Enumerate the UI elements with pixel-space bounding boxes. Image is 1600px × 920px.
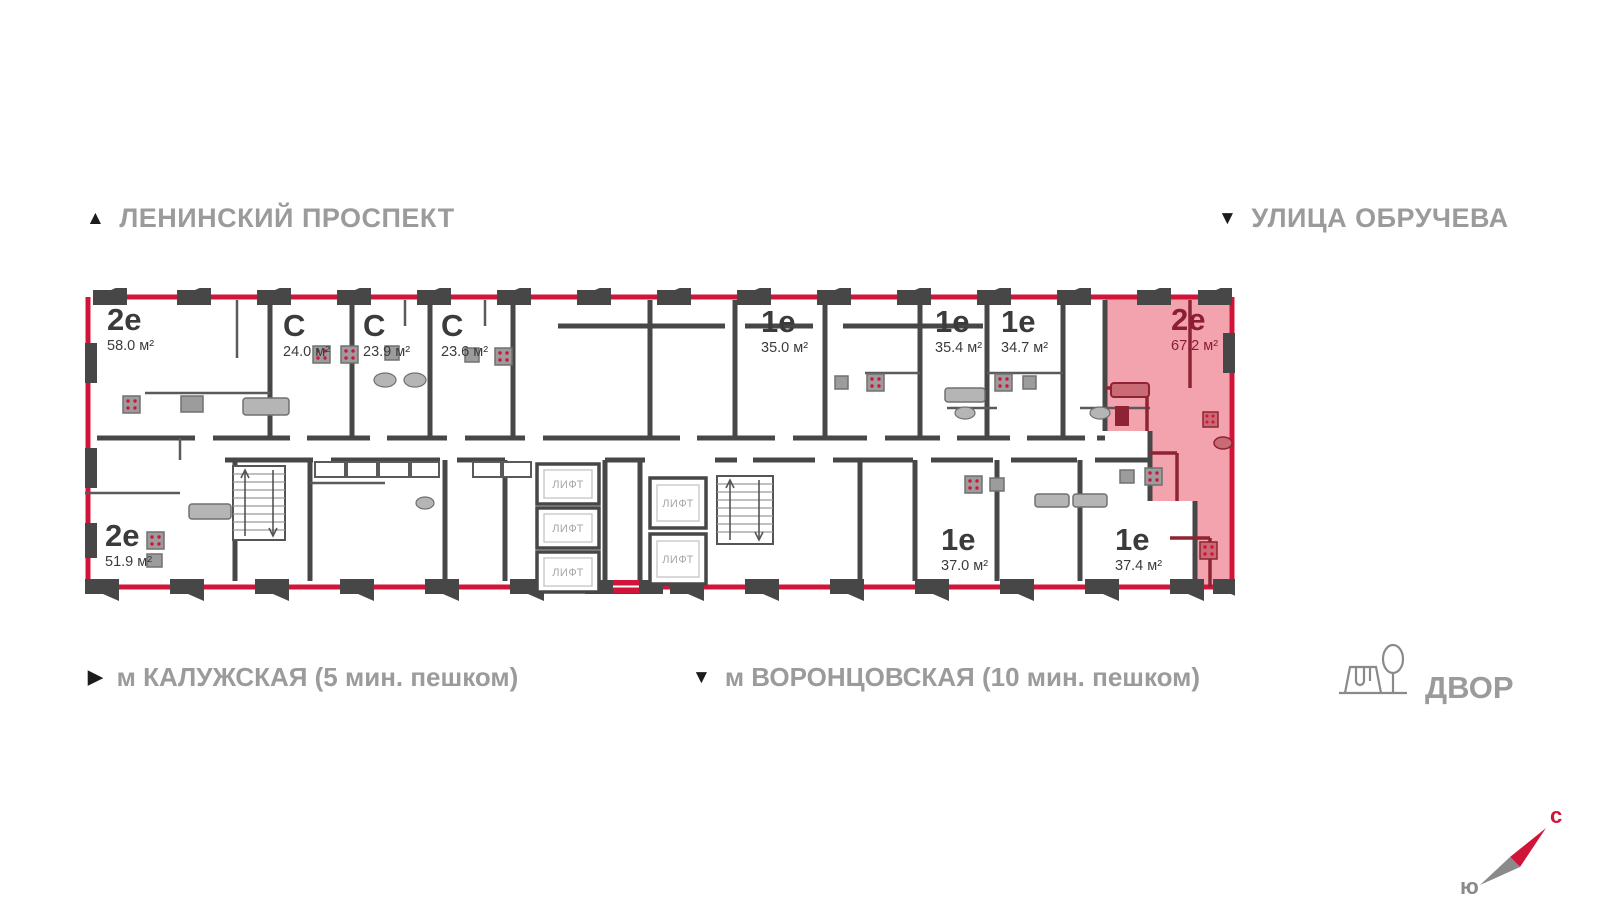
svg-text:58.0 м²: 58.0 м² (107, 338, 154, 354)
svg-text:2е: 2е (107, 302, 141, 337)
thin-partitions (85, 300, 1150, 493)
svg-text:23.6 м²: 23.6 м² (441, 344, 488, 360)
elevator-bank-right: ЛИФТ ЛИФТ (650, 478, 706, 584)
svg-text:1е: 1е (941, 522, 975, 557)
metro-label-vorontsovskaya: ▼ м ВОРОНЦОВСКАЯ (10 мин. пешком) (692, 662, 1200, 693)
svg-text:С: С (441, 308, 463, 343)
elevator-label: ЛИФТ (662, 498, 694, 510)
apartment-label-c-24[interactable]: С 24.0 м² (283, 308, 330, 360)
svg-text:23.9 м²: 23.9 м² (363, 344, 410, 360)
svg-text:51.9 м²: 51.9 м² (105, 554, 152, 570)
svg-text:1е: 1е (1115, 522, 1149, 557)
street-label-leninsky: ▲ ЛЕНИНСКИЙ ПРОСПЕКТ (86, 203, 455, 234)
staircase-left (233, 466, 285, 540)
svg-text:37.0 м²: 37.0 м² (941, 558, 988, 574)
apartment-label-1e-35-4[interactable]: 1е 35.4 м² (935, 304, 982, 356)
triangle-down-icon: ▼ (692, 668, 711, 687)
staircase-right (717, 476, 773, 544)
floor-plan-svg: ЛИФТ ЛИФТ ЛИФТ ЛИФТ ЛИФТ (85, 288, 1235, 602)
svg-text:24.0 м²: 24.0 м² (283, 344, 330, 360)
svg-text:67.2 м²: 67.2 м² (1171, 338, 1218, 354)
triangle-down-icon: ▼ (1218, 209, 1237, 228)
svg-text:1е: 1е (1001, 304, 1035, 339)
street-name: УЛИЦА ОБРУЧЕВА (1251, 203, 1508, 234)
compass-svg: с ю (1458, 795, 1568, 905)
compass-needle-south (1480, 857, 1520, 885)
triangle-right-icon: ▶ (88, 668, 103, 687)
closet-row (315, 462, 531, 477)
yard-icon (1337, 641, 1409, 703)
metro-name: м КАЛУЖСКАЯ (5 мин. пешком) (117, 662, 519, 693)
floor-plan: ЛИФТ ЛИФТ ЛИФТ ЛИФТ ЛИФТ (85, 288, 1235, 602)
svg-text:37.4 м²: 37.4 м² (1115, 558, 1162, 574)
apartment-label-2e-51-9[interactable]: 2е 51.9 м² (105, 518, 152, 570)
yard-legend: ДВОР (1337, 641, 1514, 703)
metro-name: м ВОРОНЦОВСКАЯ (10 мин. пешком) (725, 662, 1200, 693)
elevator-label: ЛИФТ (552, 523, 584, 535)
compass-south-label: ю (1460, 874, 1479, 899)
svg-text:1е: 1е (935, 304, 969, 339)
street-name: ЛЕНИНСКИЙ ПРОСПЕКТ (119, 203, 454, 234)
street-label-obrucheva: ▼ УЛИЦА ОБРУЧЕВА (1218, 203, 1509, 234)
compass-needle-north (1510, 828, 1546, 867)
apartment-label-c-23-6[interactable]: С 23.6 м² (441, 308, 488, 360)
apartment-label-1e-37[interactable]: 1е 37.0 м² (941, 522, 988, 574)
elevator-label: ЛИФТ (552, 567, 584, 579)
yard-label: ДВОР (1425, 672, 1514, 703)
compass-north-label: с (1550, 803, 1562, 828)
svg-text:2е: 2е (105, 518, 139, 553)
entrance-marker (613, 580, 639, 593)
svg-text:С: С (283, 308, 305, 343)
svg-text:35.4 м²: 35.4 м² (935, 340, 982, 356)
svg-text:2е: 2е (1171, 302, 1205, 337)
svg-text:1е: 1е (761, 304, 795, 339)
apartment-label-1e-35[interactable]: 1е 35.0 м² (761, 304, 808, 356)
apartment-label-c-23-9[interactable]: С 23.9 м² (363, 308, 410, 360)
svg-text:34.7 м²: 34.7 м² (1001, 340, 1048, 356)
svg-text:35.0 м²: 35.0 м² (761, 340, 808, 356)
elevator-bank-left: ЛИФТ ЛИФТ ЛИФТ (537, 464, 599, 592)
apartment-label-2e-58[interactable]: 2е 58.0 м² (107, 302, 154, 354)
triangle-up-icon: ▲ (86, 209, 105, 228)
apartment-label-1e-37-4[interactable]: 1е 37.4 м² (1115, 522, 1162, 574)
elevator-label: ЛИФТ (662, 554, 694, 566)
elevator-label: ЛИФТ (552, 479, 584, 491)
svg-text:С: С (363, 308, 385, 343)
metro-label-kaluzhskaya: ▶ м КАЛУЖСКАЯ (5 мин. пешком) (88, 662, 518, 693)
compass: с ю (1458, 795, 1568, 905)
apartment-label-1e-34-7[interactable]: 1е 34.7 м² (1001, 304, 1048, 356)
